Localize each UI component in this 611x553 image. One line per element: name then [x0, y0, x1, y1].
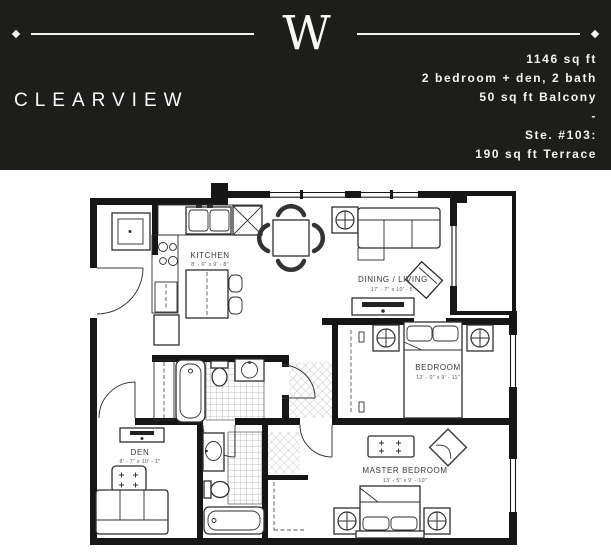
burner — [160, 258, 167, 265]
brand-monogram-logo: W — [266, 8, 344, 60]
room-dims-kitchen: 8' - 6" x 9' - 8" — [191, 262, 229, 268]
master-door — [300, 425, 332, 457]
header-band: W CLEARVIEW 1146 sq ft 2 bedroom + den, … — [0, 0, 611, 170]
refrigerator — [154, 315, 179, 345]
nightstand-lamp — [334, 508, 360, 534]
sofa-chaise — [358, 248, 384, 260]
island-stool — [229, 297, 242, 314]
spec-bed-bath: 2 bedroom + den, 2 bath — [422, 69, 597, 88]
plan-title: CLEARVIEW — [14, 90, 189, 112]
sectional-sofa — [358, 208, 440, 248]
floor-lamp — [332, 207, 358, 233]
spec-area: 1146 sq ft — [422, 50, 597, 69]
spec-separator: - — [422, 107, 597, 126]
flyer-page: W CLEARVIEW 1146 sq ft 2 bedroom + den, … — [0, 0, 611, 553]
dresser — [368, 436, 414, 457]
corner-unit — [430, 429, 467, 466]
toilet-tank — [211, 361, 228, 368]
burner — [170, 244, 177, 251]
spec-balcony: 50 sq ft Balcony — [422, 88, 597, 107]
kitchen-sink — [186, 207, 231, 234]
ornament-line-left — [31, 33, 254, 35]
room-label-den: DEN — [131, 448, 150, 457]
closet-bracket — [359, 332, 364, 342]
room-dims-master: 13' - 5" x 9' - 10" — [383, 478, 427, 484]
ornament-line-right — [357, 33, 580, 35]
room-label-master: MASTER BEDROOM — [362, 466, 447, 475]
ensuite-bath-floor — [228, 432, 262, 504]
room-dims-bedroom: 12' - 0" x 9' - 11" — [416, 375, 460, 381]
toilet — [211, 482, 229, 498]
tv-living — [362, 302, 404, 307]
master-bed — [360, 486, 420, 532]
master-window — [511, 456, 516, 515]
nightstand-lamp — [424, 508, 450, 534]
living-windows — [270, 193, 418, 198]
tv-stand — [381, 309, 385, 313]
hall-floor — [289, 362, 332, 418]
diamond-ornament-right — [591, 30, 599, 38]
room-label-bedroom: BEDROOM — [415, 363, 461, 372]
room-label-kitchen: KITCHEN — [190, 251, 229, 260]
den-table — [112, 466, 146, 492]
tv-den — [130, 431, 154, 435]
unit-specs: 1146 sq ft 2 bedroom + den, 2 bath 50 sq… — [422, 50, 597, 164]
toilet — [212, 368, 227, 386]
room-dims-den: 8' - 7" x 10' - 1" — [120, 459, 161, 465]
burner — [159, 243, 168, 252]
den-furniture — [96, 428, 168, 534]
tv-stand — [141, 437, 144, 440]
kitchen-fixtures — [112, 205, 262, 346]
faucet — [248, 361, 251, 364]
walk-in-closet-shelving — [274, 482, 306, 530]
washer-knob — [129, 230, 132, 233]
faucet — [207, 205, 213, 209]
spec-suite-number: Ste. #103: — [422, 126, 597, 145]
balcony-door-window — [452, 226, 456, 286]
diamond-ornament-left — [12, 30, 20, 38]
burner — [169, 257, 178, 266]
den-sofa — [96, 490, 168, 534]
faucet — [205, 450, 208, 453]
bedroom-window — [511, 332, 516, 390]
room-label-dining-living: DINING / LIVING — [358, 275, 428, 284]
nightstand-lamp — [467, 325, 493, 351]
lower-hall-floor — [268, 432, 300, 474]
room-dims-dining-living: 17' - 7" x 10' - 5" — [371, 287, 415, 293]
toilet-tank — [204, 481, 211, 498]
dining-table — [273, 220, 309, 256]
spec-terrace: 190 sq ft Terrace — [422, 145, 597, 164]
nightstand-lamp — [373, 325, 399, 351]
headboard — [356, 531, 424, 538]
floor-plan: KITCHEN 8' - 6" x 9' - 8" DINING / LIVIN… — [0, 170, 611, 553]
den-door — [99, 382, 135, 418]
entry-door — [97, 268, 143, 314]
living-furniture — [259, 206, 442, 315]
island-stool — [229, 275, 242, 292]
faucet — [196, 205, 202, 209]
closet-bracket — [359, 402, 364, 412]
